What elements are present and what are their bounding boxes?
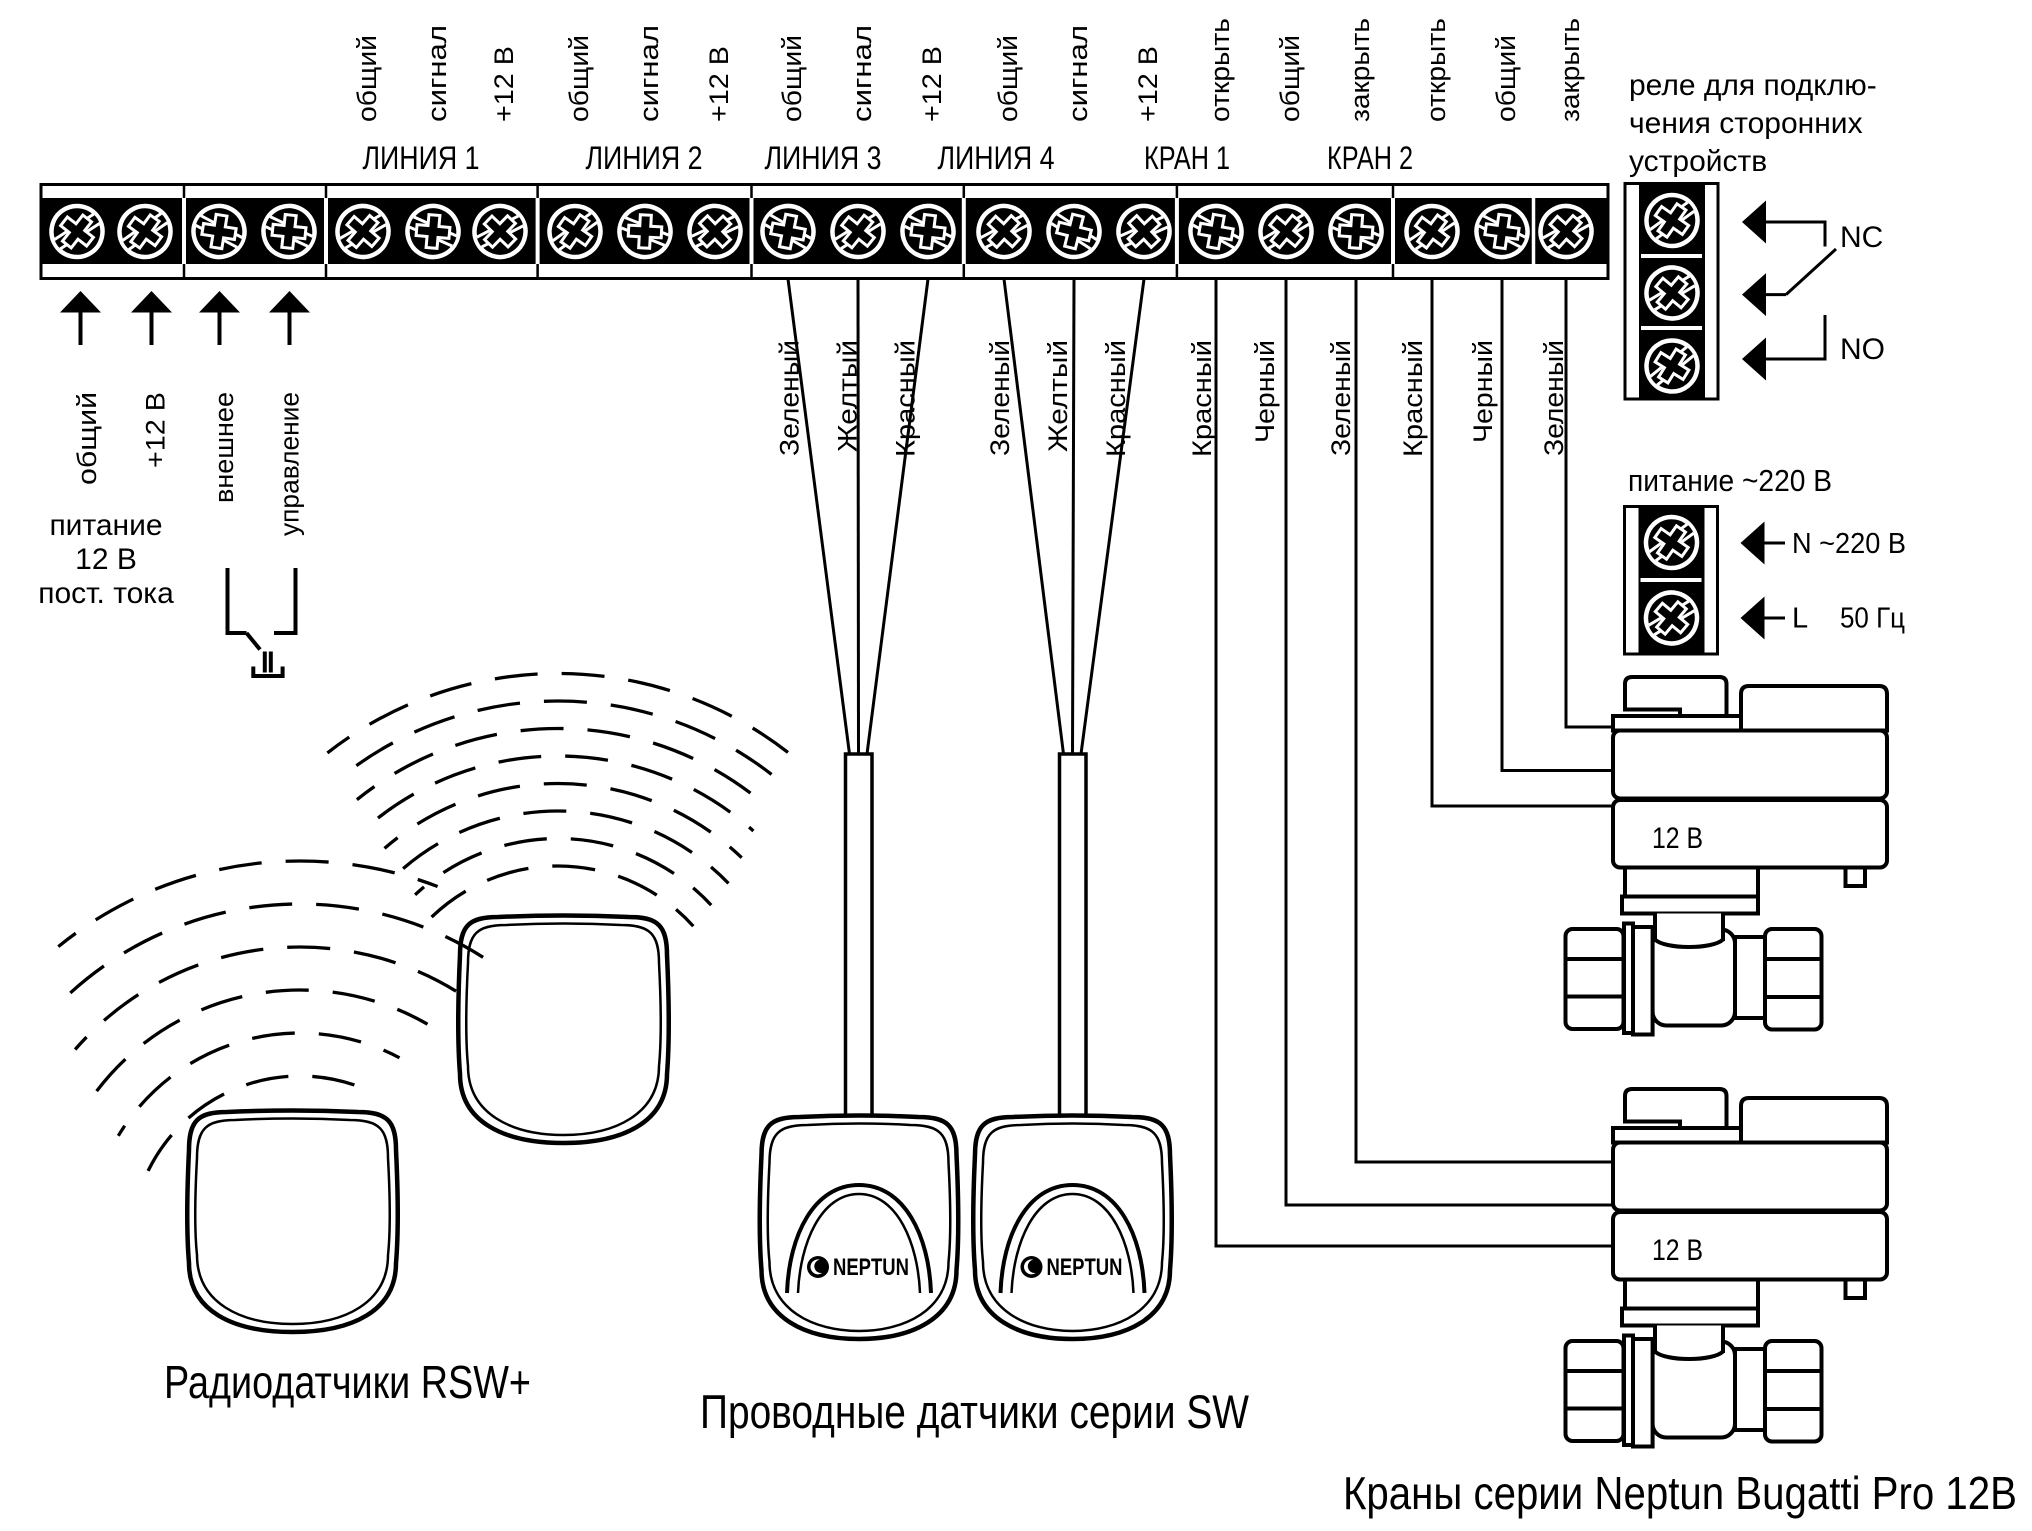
svg-text:внешнее: внешнее	[209, 392, 239, 503]
svg-text:NO: NO	[1840, 333, 1885, 366]
svg-text:устройств: устройств	[1629, 145, 1767, 178]
svg-text:общий: общий	[993, 35, 1023, 122]
svg-text:сигнал: сигнал	[847, 25, 877, 122]
svg-text:общий: общий	[352, 35, 382, 122]
svg-text:NC: NC	[1840, 221, 1883, 254]
svg-text:сигнал: сигнал	[1063, 25, 1093, 122]
svg-text:Краны серии Neptun Bugatti Pro: Краны серии Neptun Bugatti Pro 12В	[1343, 1467, 2017, 1519]
svg-text:Проводные датчики серии SW: Проводные датчики серии SW	[700, 1385, 1250, 1438]
svg-text:+12 В: +12 В	[1133, 46, 1163, 122]
svg-text:Красный: Красный	[1187, 340, 1217, 457]
svg-text:закрыть: закрыть	[1555, 18, 1585, 122]
svg-text:КРАН 2: КРАН 2	[1327, 140, 1413, 176]
svg-text:+12 В: +12 В	[917, 46, 947, 122]
svg-text:управление: управление	[275, 392, 305, 536]
svg-text:реле для подклю-: реле для подклю-	[1629, 69, 1877, 102]
svg-text:ЛИНИЯ 3: ЛИНИЯ 3	[765, 140, 882, 176]
svg-text:L: L	[1792, 603, 1808, 635]
svg-text:Желтый: Желтый	[833, 340, 863, 452]
svg-text:Черный: Черный	[1250, 340, 1280, 443]
svg-text:Красный: Красный	[891, 340, 921, 457]
svg-text:Красный: Красный	[1101, 340, 1131, 457]
svg-text:ЛИНИЯ 2: ЛИНИЯ 2	[586, 140, 703, 176]
svg-text:сигнал: сигнал	[422, 25, 452, 122]
svg-text:NEPTUN: NEPTUN	[833, 1254, 909, 1281]
svg-text:50 Гц: 50 Гц	[1840, 603, 1905, 635]
svg-text:ЛИНИЯ 4: ЛИНИЯ 4	[938, 140, 1055, 176]
svg-text:общий: общий	[72, 392, 102, 485]
svg-text:N ~220 В: N ~220 В	[1792, 528, 1906, 560]
svg-text:Черный: Черный	[1468, 340, 1498, 443]
svg-text:закрыть: закрыть	[1345, 18, 1375, 122]
svg-text:открыть: открыть	[1205, 18, 1235, 122]
svg-text:+12 В: +12 В	[704, 46, 734, 122]
svg-text:Зеленый: Зеленый	[985, 340, 1015, 456]
svg-text:Желтый: Желтый	[1043, 340, 1073, 452]
svg-text:общий: общий	[1275, 35, 1305, 122]
svg-text:+12 В: +12 В	[489, 46, 519, 122]
svg-text:NEPTUN: NEPTUN	[1047, 1254, 1123, 1281]
svg-text:Зеленый: Зеленый	[775, 340, 805, 456]
svg-text:Красный: Красный	[1398, 340, 1428, 457]
svg-text:питание ~220 В: питание ~220 В	[1628, 463, 1832, 498]
svg-text:общий: общий	[1491, 35, 1521, 122]
svg-text:Зеленый: Зеленый	[1539, 340, 1569, 456]
svg-text:общий: общий	[564, 35, 594, 122]
svg-text:Зеленый: Зеленый	[1326, 340, 1356, 456]
svg-text:+12 В: +12 В	[141, 392, 171, 468]
svg-text:пост. тока: пост. тока	[38, 577, 174, 610]
svg-text:открыть: открыть	[1421, 18, 1451, 122]
svg-text:ЛИНИЯ 1: ЛИНИЯ 1	[363, 140, 480, 176]
svg-text:питание: питание	[49, 509, 162, 542]
svg-text:чения сторонних: чения сторонних	[1629, 107, 1863, 140]
svg-text:12 В: 12 В	[75, 543, 137, 576]
svg-text:Радиодатчики RSW+: Радиодатчики RSW+	[164, 1356, 531, 1408]
svg-text:сигнал: сигнал	[634, 25, 664, 122]
svg-text:общий: общий	[777, 35, 807, 122]
svg-text:КРАН 1: КРАН 1	[1144, 140, 1230, 176]
